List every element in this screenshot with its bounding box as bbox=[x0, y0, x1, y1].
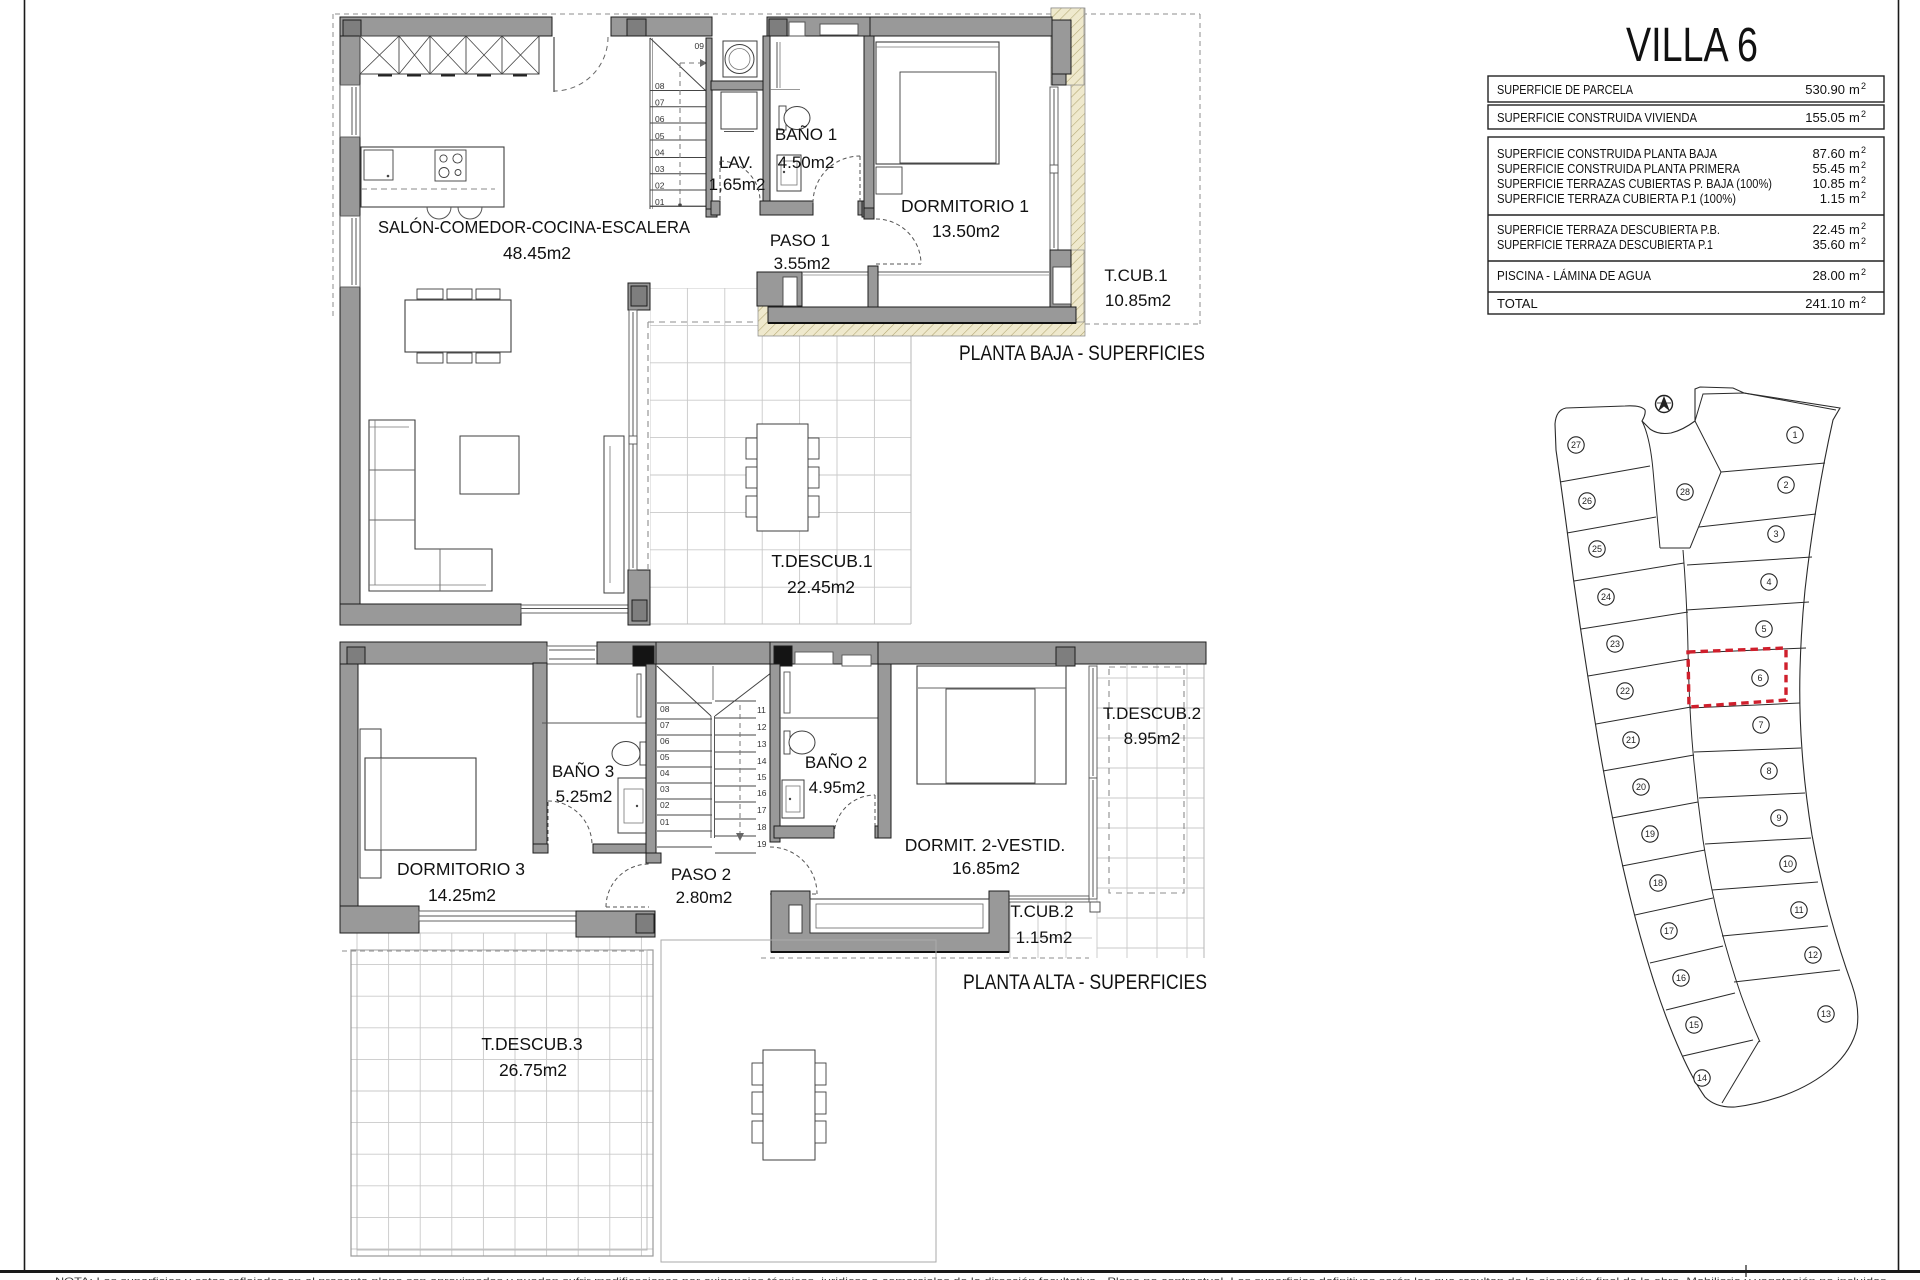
svg-text:2.80m2: 2.80m2 bbox=[676, 888, 733, 907]
svg-text:5.25m2: 5.25m2 bbox=[556, 787, 613, 806]
svg-text:26: 26 bbox=[1582, 496, 1592, 506]
svg-text:22.45: 22.45 bbox=[1812, 222, 1845, 237]
svg-text:01: 01 bbox=[660, 817, 670, 827]
svg-text:16.85m2: 16.85m2 bbox=[952, 858, 1020, 878]
svg-text:23: 23 bbox=[1610, 639, 1620, 649]
svg-text:SUPERFICIE CONSTRUIDA VIVIENDA: SUPERFICIE CONSTRUIDA VIVIENDA bbox=[1497, 110, 1697, 125]
svg-text:PASO 1: PASO 1 bbox=[770, 231, 830, 250]
svg-text:PASO 2: PASO 2 bbox=[671, 865, 731, 884]
svg-text:35.60: 35.60 bbox=[1812, 237, 1845, 252]
svg-text:4: 4 bbox=[1766, 577, 1771, 587]
svg-text:3: 3 bbox=[1773, 529, 1778, 539]
svg-text:17: 17 bbox=[1664, 926, 1674, 936]
svg-text:14.25m2: 14.25m2 bbox=[428, 885, 496, 905]
svg-text:LAV.: LAV. bbox=[719, 153, 753, 172]
svg-text:BAÑO 3: BAÑO 3 bbox=[552, 762, 614, 781]
svg-text:15: 15 bbox=[757, 772, 767, 782]
svg-text:22: 22 bbox=[1620, 686, 1630, 696]
svg-text:SALÓN-COMEDOR-COCINA-ESCALERA: SALÓN-COMEDOR-COCINA-ESCALERA bbox=[378, 216, 690, 237]
svg-text:PISCINA - LÁMINA DE AGUA: PISCINA - LÁMINA DE AGUA bbox=[1497, 268, 1651, 283]
svg-text:7: 7 bbox=[1758, 720, 1763, 730]
svg-text:T.CUB.2: T.CUB.2 bbox=[1010, 902, 1073, 921]
svg-text:28.00: 28.00 bbox=[1812, 268, 1845, 283]
svg-text:11: 11 bbox=[757, 705, 766, 715]
svg-text:T.DESCUB.2: T.DESCUB.2 bbox=[1103, 704, 1201, 723]
svg-text:07: 07 bbox=[655, 98, 665, 108]
svg-text:10.85m2: 10.85m2 bbox=[1105, 291, 1171, 310]
svg-text:26.75m2: 26.75m2 bbox=[499, 1060, 567, 1080]
svg-text:SUPERFICIE TERRAZA CUBIERTA P.: SUPERFICIE TERRAZA CUBIERTA P.1 (100%) bbox=[1497, 191, 1736, 206]
svg-text:2: 2 bbox=[1861, 267, 1866, 277]
svg-text:SUPERFICIE CONSTRUIDA PLANTA B: SUPERFICIE CONSTRUIDA PLANTA BAJA bbox=[1497, 146, 1717, 161]
svg-text:25: 25 bbox=[1592, 544, 1602, 554]
svg-text:SUPERFICIE DE PARCELA: SUPERFICIE DE PARCELA bbox=[1497, 82, 1633, 97]
svg-text:SUPERFICIE TERRAZA DESCUBIERTA: SUPERFICIE TERRAZA DESCUBIERTA P.1 bbox=[1497, 237, 1713, 252]
svg-text:8: 8 bbox=[1766, 766, 1771, 776]
svg-text:2: 2 bbox=[1861, 160, 1866, 170]
svg-text:1: 1 bbox=[1792, 430, 1797, 440]
svg-text:SUPERFICIE TERRAZAS CUBIERTAS: SUPERFICIE TERRAZAS CUBIERTAS P. BAJA (1… bbox=[1497, 176, 1772, 191]
svg-text:1.15: 1.15 bbox=[1820, 191, 1845, 206]
svg-text:02: 02 bbox=[655, 181, 665, 191]
svg-text:m: m bbox=[1849, 237, 1860, 252]
svg-text:DORMITORIO 1: DORMITORIO 1 bbox=[901, 196, 1029, 216]
svg-text:SUPERFICIE TERRAZA DESCUBIERTA: SUPERFICIE TERRAZA DESCUBIERTA P.B. bbox=[1497, 222, 1720, 237]
svg-text:01: 01 bbox=[655, 197, 665, 207]
svg-text:2: 2 bbox=[1861, 81, 1866, 91]
svg-text:07: 07 bbox=[660, 720, 670, 730]
svg-text:2: 2 bbox=[1861, 295, 1866, 305]
svg-text:5: 5 bbox=[1761, 624, 1766, 634]
svg-text:16: 16 bbox=[757, 788, 767, 798]
svg-text:2: 2 bbox=[1861, 190, 1866, 200]
svg-text:18: 18 bbox=[757, 822, 767, 832]
svg-text:NOTA: Las superficies y cotas: NOTA: Las superficies y cotas reflejadas… bbox=[55, 1276, 1890, 1280]
svg-text:T.DESCUB.3: T.DESCUB.3 bbox=[481, 1034, 582, 1054]
svg-text:19: 19 bbox=[1645, 829, 1655, 839]
svg-text:04: 04 bbox=[655, 148, 665, 158]
svg-text:55.45: 55.45 bbox=[1812, 161, 1845, 176]
svg-text:1.15m2: 1.15m2 bbox=[1016, 928, 1073, 947]
svg-text:06: 06 bbox=[660, 736, 670, 746]
svg-text:02: 02 bbox=[660, 800, 670, 810]
svg-text:28: 28 bbox=[1680, 487, 1690, 497]
svg-text:9: 9 bbox=[1776, 813, 1781, 823]
svg-text:87.60: 87.60 bbox=[1812, 146, 1845, 161]
svg-text:14: 14 bbox=[757, 756, 767, 766]
svg-text:T.DESCUB.1: T.DESCUB.1 bbox=[771, 551, 872, 571]
svg-text:m: m bbox=[1849, 191, 1860, 206]
svg-text:m: m bbox=[1849, 110, 1860, 125]
svg-text:10.85: 10.85 bbox=[1812, 176, 1845, 191]
svg-text:2: 2 bbox=[1861, 236, 1866, 246]
svg-text:m: m bbox=[1849, 161, 1860, 176]
svg-text:4.95m2: 4.95m2 bbox=[809, 778, 866, 797]
svg-text:24: 24 bbox=[1601, 592, 1611, 602]
svg-text:12: 12 bbox=[1808, 950, 1818, 960]
svg-text:03: 03 bbox=[655, 164, 665, 174]
svg-text:05: 05 bbox=[655, 131, 665, 141]
svg-text:TOTAL: TOTAL bbox=[1497, 296, 1538, 311]
svg-text:13: 13 bbox=[1821, 1009, 1831, 1019]
svg-text:04: 04 bbox=[660, 768, 670, 778]
svg-text:530.90: 530.90 bbox=[1805, 82, 1845, 97]
svg-text:241.10: 241.10 bbox=[1805, 296, 1845, 311]
svg-text:2: 2 bbox=[1861, 109, 1866, 119]
svg-text:VILLA 6: VILLA 6 bbox=[1626, 19, 1758, 72]
svg-text:m: m bbox=[1849, 296, 1860, 311]
svg-text:22.45m2: 22.45m2 bbox=[787, 577, 855, 597]
svg-text:19: 19 bbox=[757, 839, 767, 849]
svg-text:SUPERFICIE CONSTRUIDA PLANTA P: SUPERFICIE CONSTRUIDA PLANTA PRIMERA bbox=[1497, 161, 1740, 176]
svg-text:155.05: 155.05 bbox=[1805, 110, 1845, 125]
svg-text:05: 05 bbox=[660, 752, 670, 762]
svg-text:08: 08 bbox=[655, 81, 665, 91]
svg-text:13: 13 bbox=[757, 739, 767, 749]
svg-text:m: m bbox=[1849, 146, 1860, 161]
svg-text:14: 14 bbox=[1697, 1073, 1707, 1083]
svg-text:10: 10 bbox=[1783, 859, 1793, 869]
svg-text:T.CUB.1: T.CUB.1 bbox=[1104, 266, 1167, 285]
svg-text:2: 2 bbox=[1783, 480, 1788, 490]
svg-text:21: 21 bbox=[1626, 735, 1636, 745]
svg-text:m: m bbox=[1849, 176, 1860, 191]
svg-text:DORMITORIO 3: DORMITORIO 3 bbox=[397, 859, 525, 879]
svg-text:13.50m2: 13.50m2 bbox=[932, 221, 1000, 241]
svg-text:11: 11 bbox=[1794, 905, 1803, 915]
svg-text:2: 2 bbox=[1861, 145, 1866, 155]
svg-text:BAÑO 2: BAÑO 2 bbox=[805, 753, 867, 772]
svg-text:2: 2 bbox=[1861, 221, 1866, 231]
svg-text:12: 12 bbox=[757, 722, 767, 732]
svg-text:09: 09 bbox=[695, 41, 705, 51]
svg-text:4.50m2: 4.50m2 bbox=[778, 153, 835, 172]
svg-text:18: 18 bbox=[1653, 878, 1663, 888]
svg-text:17: 17 bbox=[757, 805, 767, 815]
svg-text:27: 27 bbox=[1571, 440, 1581, 450]
svg-text:m: m bbox=[1849, 268, 1860, 283]
svg-text:2: 2 bbox=[1861, 175, 1866, 185]
svg-text:08: 08 bbox=[660, 704, 670, 714]
svg-text:15: 15 bbox=[1689, 1020, 1699, 1030]
svg-text:16: 16 bbox=[1676, 973, 1686, 983]
svg-text:m: m bbox=[1849, 222, 1860, 237]
svg-text:m: m bbox=[1849, 82, 1860, 97]
svg-text:48.45m2: 48.45m2 bbox=[503, 243, 571, 263]
svg-text:3.55m2: 3.55m2 bbox=[774, 254, 831, 273]
svg-text:PLANTA BAJA - SUPERFICIES: PLANTA BAJA - SUPERFICIES bbox=[959, 341, 1205, 365]
svg-text:DORMIT. 2-VESTID.: DORMIT. 2-VESTID. bbox=[905, 835, 1065, 855]
svg-text:03: 03 bbox=[660, 784, 670, 794]
svg-text:8.95m2: 8.95m2 bbox=[1124, 729, 1181, 748]
svg-text:6: 6 bbox=[1757, 673, 1762, 683]
svg-text:BAÑO 1: BAÑO 1 bbox=[775, 125, 837, 144]
svg-text:06: 06 bbox=[655, 114, 665, 124]
svg-text:20: 20 bbox=[1636, 782, 1646, 792]
svg-text:PLANTA ALTA - SUPERFICIES: PLANTA ALTA - SUPERFICIES bbox=[963, 970, 1207, 994]
